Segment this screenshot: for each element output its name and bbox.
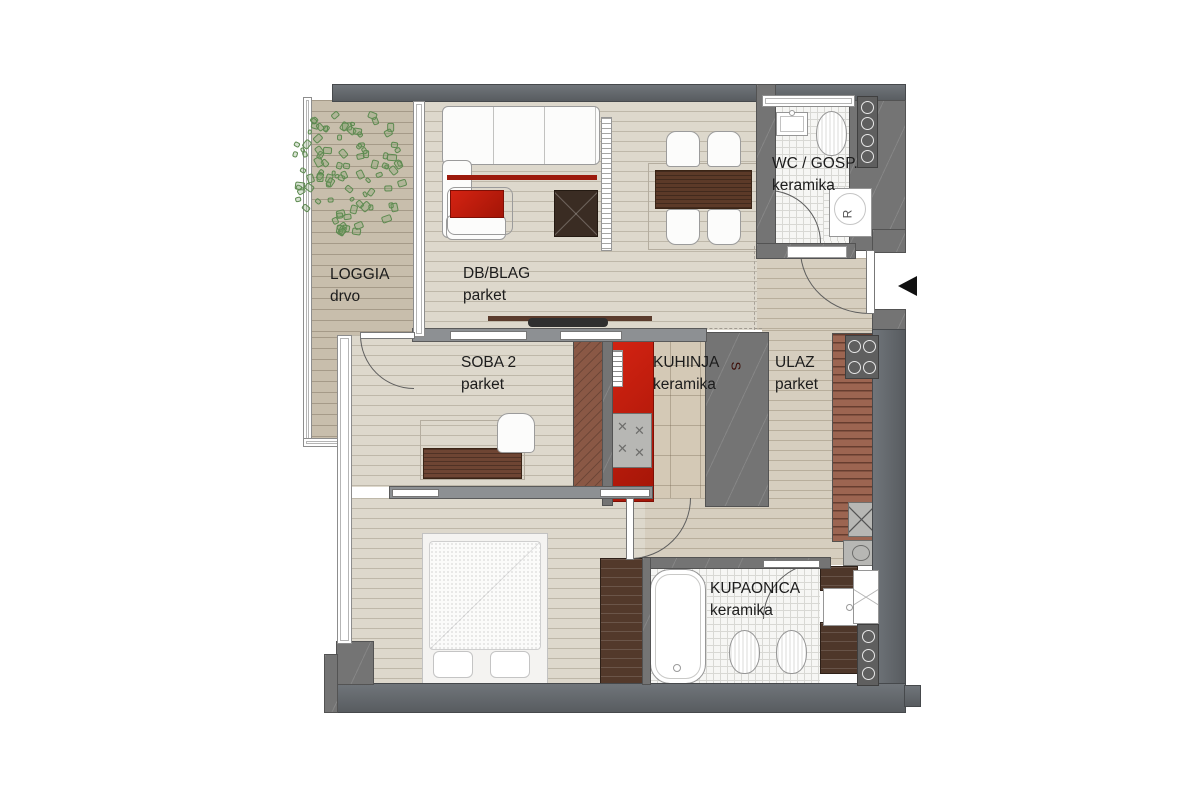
room-label-db-blag: DB/BLAG parket — [463, 263, 530, 307]
room-label-soba2: SOBA 2 parket — [461, 352, 516, 396]
bathroom-bidet — [776, 630, 807, 674]
room-floor-type: parket — [775, 374, 818, 396]
wall-bathroom-left — [643, 558, 650, 684]
room-label-loggia: LOGGIA drvo — [330, 264, 389, 308]
wc-toilet — [816, 111, 847, 156]
wall-right-entry-step — [873, 230, 905, 252]
wall-kitchen-left — [603, 329, 612, 505]
kitchen-appliance-label: S — [724, 362, 746, 371]
pipe-icon — [861, 117, 874, 130]
loggia-floor-strip — [310, 337, 337, 444]
room-name: WC / GOSP. — [772, 153, 858, 175]
armchair-red — [450, 190, 504, 218]
cooktop: ✕ ✕ ✕ ✕ — [612, 413, 652, 468]
dining-chair — [666, 209, 700, 245]
radiator — [601, 117, 612, 251]
wc-door-opening — [787, 246, 847, 258]
loggia-railing-left — [303, 97, 312, 447]
dining-table — [655, 170, 752, 209]
pipe-icon — [861, 150, 874, 163]
burner-icon: ✕ — [634, 446, 645, 459]
pipe-icon — [862, 630, 875, 643]
soba2-wardrobe — [573, 337, 605, 489]
bed-pillow — [433, 651, 473, 678]
burner-icon: ✕ — [617, 442, 628, 455]
rug-runner — [447, 175, 597, 180]
wall-left-corner-step — [325, 655, 337, 712]
sliding-door-panel — [392, 489, 439, 497]
dining-chair — [666, 131, 700, 167]
bed-pillow — [490, 651, 530, 678]
dining-chair — [707, 209, 741, 245]
bathtub-drain — [673, 664, 681, 672]
exterior-wall-bottom — [325, 684, 905, 712]
room-floor-type: parket — [461, 374, 516, 396]
room-name: ULAZ — [775, 352, 818, 374]
pipe-shaft-bathroom — [857, 624, 879, 686]
pipe-icon — [863, 340, 876, 353]
room-label-wc-gosp: WC / GOSP. keramika — [772, 153, 858, 197]
sink-drain-icon — [846, 604, 853, 611]
wall-right-below-door — [873, 310, 905, 332]
wc-window-band — [762, 95, 855, 107]
soba2-loggia-door-leaf — [360, 332, 415, 339]
room-name: KUHINJA — [653, 352, 719, 374]
pipe-icon — [861, 101, 874, 114]
fan-icon — [852, 545, 870, 561]
zone-divider-dashed — [754, 246, 756, 330]
room-name: LOGGIA — [330, 264, 389, 286]
bedroom-door-leaf — [626, 498, 634, 560]
room-floor-type: parket — [463, 285, 530, 307]
sliding-door-panel — [600, 489, 650, 497]
sliding-door-panel — [450, 331, 527, 340]
shaft-box-hall — [845, 335, 879, 379]
tv — [528, 318, 608, 327]
hall-x-box — [848, 502, 875, 537]
pipe-icon — [862, 667, 875, 680]
floor-plan: R ✕ ✕ ✕ ✕ S △ — [0, 0, 1200, 800]
bed-mattress — [429, 541, 541, 650]
entry-door-leaf — [866, 250, 875, 314]
room-name: DB/BLAG — [463, 263, 530, 285]
pipe-icon — [862, 649, 875, 662]
dining-chair — [707, 131, 741, 167]
room-name: KUPAONICA — [710, 578, 800, 600]
burner-icon: ✕ — [617, 420, 628, 433]
glazing-living-loggia — [413, 101, 425, 337]
room-label-kuhinja: KUHINJA keramika — [653, 352, 719, 396]
window-wall-left — [337, 335, 352, 644]
desk-chair — [497, 413, 535, 453]
pipe-icon — [848, 340, 861, 353]
bedroom-wardrobe — [600, 558, 645, 686]
shower-shaft-x — [853, 570, 879, 624]
room-label-kupaonica: KUPAONICA keramika — [710, 578, 800, 622]
room-floor-type: drvo — [330, 286, 389, 308]
pipe-shaft-wc — [857, 96, 878, 168]
room-label-ulaz: ULAZ parket — [775, 352, 818, 396]
pipe-icon — [863, 361, 876, 374]
room-floor-type: keramika — [772, 175, 858, 197]
exterior-wall-bottom-stub — [905, 686, 920, 706]
sofa — [442, 106, 600, 165]
entrance-arrow-icon — [898, 276, 917, 296]
pipe-icon — [861, 134, 874, 147]
sliding-door-panel — [560, 331, 622, 340]
coffee-table — [554, 190, 598, 237]
washer-label: R — [836, 210, 858, 219]
bathroom-door-opening — [763, 560, 820, 568]
room-name: SOBA 2 — [461, 352, 516, 374]
wc-sink-tap — [789, 110, 795, 116]
room-floor-type: keramika — [710, 600, 800, 622]
room-floor-type: keramika — [653, 374, 719, 396]
wall-left-corner — [337, 642, 373, 684]
pipe-icon — [848, 361, 861, 374]
vanity-cabinet-bottom — [820, 622, 858, 674]
burner-icon: ✕ — [634, 424, 645, 437]
bathroom-toilet — [729, 630, 760, 674]
